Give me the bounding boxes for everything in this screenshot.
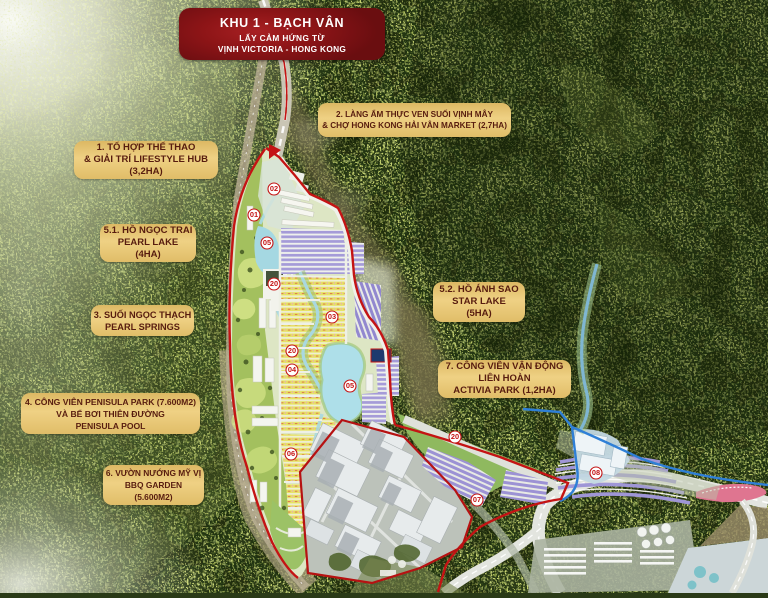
svg-text:02: 02	[270, 184, 278, 193]
svg-text:05: 05	[346, 381, 354, 390]
svg-text:05: 05	[263, 238, 271, 247]
svg-text:08: 08	[592, 468, 600, 477]
svg-text:01: 01	[250, 210, 258, 219]
svg-text:20: 20	[270, 279, 278, 288]
svg-text:20: 20	[288, 346, 296, 355]
svg-text:04: 04	[288, 365, 297, 374]
svg-text:07: 07	[473, 495, 481, 504]
svg-text:03: 03	[328, 312, 336, 321]
svg-text:20: 20	[451, 432, 459, 441]
svg-text:06: 06	[287, 449, 295, 458]
